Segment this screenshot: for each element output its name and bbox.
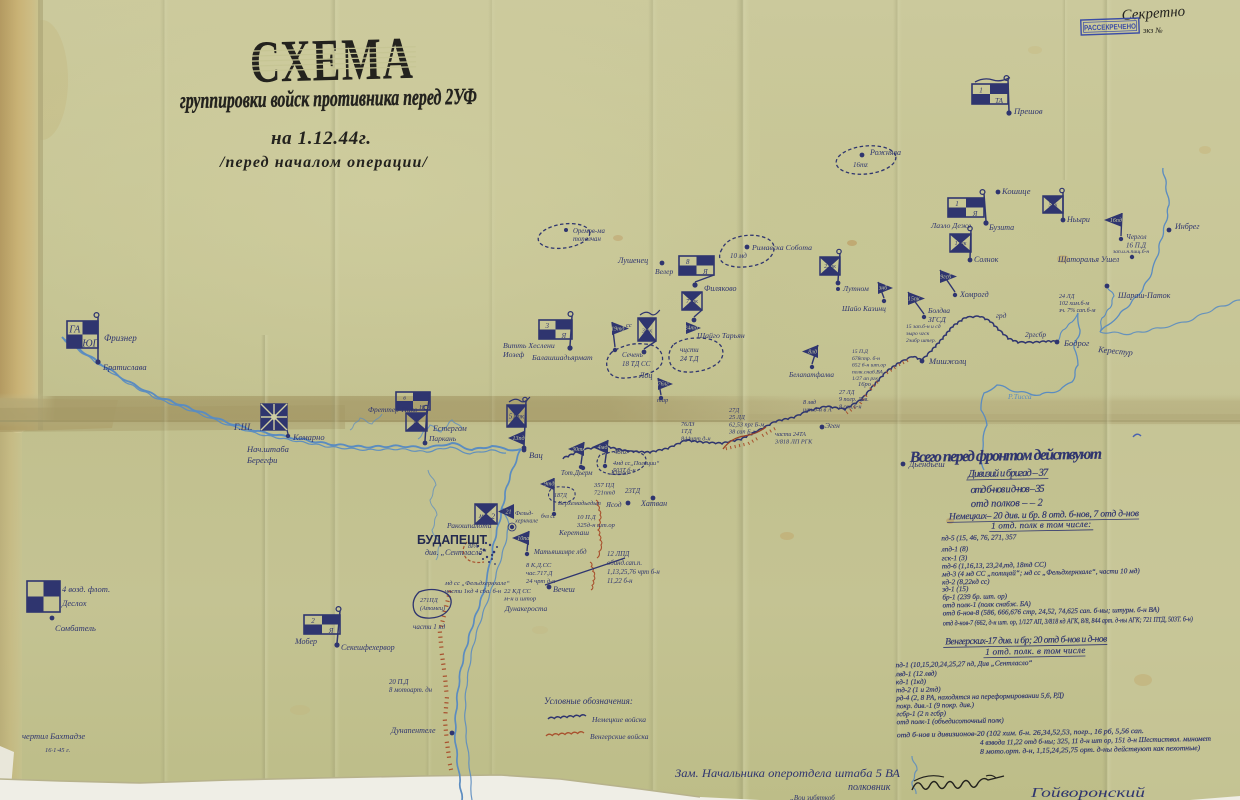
svg-text:Ракошпалота: Ракошпалота: [446, 521, 492, 530]
svg-text:ЗГСД: ЗГСД: [928, 315, 947, 324]
svg-text:30тк: 30тк: [571, 447, 585, 453]
svg-text:Лазло Деже: Лазло Деже: [930, 221, 972, 230]
svg-text:76лг: 76лг: [658, 382, 670, 388]
svg-text:Лушенец: Лушенец: [617, 256, 648, 265]
svg-text:678стр. б-н: 678стр. б-н: [852, 355, 880, 362]
svg-text:Белапатфалва: Белапатфалва: [788, 371, 834, 379]
svg-text:Вац: Вац: [529, 450, 543, 460]
svg-text:15 П.Д: 15 П.Д: [852, 349, 868, 355]
svg-text:Комарно: Комарно: [292, 432, 325, 442]
svg-text:Витть Хеслени: Витть Хеслени: [503, 341, 555, 350]
svg-text:16·1·45 г.: 16·1·45 г.: [45, 747, 71, 754]
svg-text:Лутном: Лутном: [842, 284, 869, 293]
svg-text:17ак: 17ак: [955, 241, 967, 247]
svg-text:12 ЛПД: 12 ЛПД: [607, 551, 630, 558]
svg-text:ТА: ТА: [995, 97, 1003, 105]
svg-text:2: 2: [491, 512, 495, 521]
svg-text:503Т б-н: 503Т б-н: [613, 467, 636, 474]
svg-text:Секешфехервор: Секешфехервор: [341, 643, 395, 652]
svg-text:ГА: ГА: [68, 324, 81, 335]
svg-text:Мобер: Мобер: [294, 637, 317, 646]
svg-text:Матьяшимре лбд: Матьяшимре лбд: [533, 548, 587, 556]
svg-text:Ньыри: Ньыри: [1066, 215, 1090, 224]
svg-text:Дивизий и бригад – 37: Дивизий и бригад – 37: [967, 468, 1049, 480]
svg-text:4мд: 4мд: [598, 444, 608, 451]
svg-text:Шайо Казинц: Шайо Казинц: [841, 304, 886, 313]
svg-text:сс: сс: [626, 322, 632, 329]
svg-text:1: 1: [979, 86, 983, 94]
svg-text:Я: Я: [702, 268, 708, 276]
svg-text:76ЛЗ: 76ЛЗ: [681, 421, 694, 428]
svg-text:Оремов-ма: Оремов-ма: [573, 228, 605, 235]
svg-text:лпд-1 (8): лпд-1 (8): [940, 545, 968, 553]
svg-text:4мд сс„Полиции“: 4мд сс„Полиции“: [613, 460, 660, 467]
svg-text:Я: Я: [328, 627, 334, 635]
svg-text:24 ЛД: 24 ЛД: [1059, 293, 1076, 300]
svg-text:на 1.12.44г.: на 1.12.44г.: [271, 128, 371, 149]
svg-text:Паркань: Паркань: [428, 434, 457, 443]
svg-text:18 ТД СС: 18 ТД СС: [622, 360, 651, 368]
svg-text:Мишжолц: Мишжолц: [928, 356, 966, 366]
svg-text:721птд: 721птд: [594, 490, 616, 497]
svg-text:„Вои зибяткоб: „Вои зибяткоб: [790, 794, 835, 800]
svg-text:Ясод: Ясод: [605, 500, 622, 509]
svg-text:части 1кд 4 сба. б-н: части 1кд 4 сба. б-н: [445, 588, 501, 595]
svg-text:группировки войск противника п: группировки войск противника перед 2УФ: [180, 84, 477, 113]
svg-text:м-н и штор: м-н и штор: [503, 596, 537, 603]
svg-text:23ак: 23ак: [824, 264, 836, 270]
svg-text:25 ЛД: 25 ЛД: [729, 414, 746, 421]
svg-text:Тот.Дьерм: Тот.Дьерм: [561, 470, 593, 477]
svg-text:Берегфи: Берегфи: [246, 455, 277, 465]
svg-text:зч. 7% сап.б-м: зч. 7% сап.б-м: [1058, 307, 1096, 314]
svg-text:Бузита: Бузита: [988, 223, 1014, 232]
svg-text:Фельд-: Фельд-: [515, 510, 533, 517]
svg-text:шт.б-н в А: шт.б-н в А: [803, 407, 832, 414]
svg-text:бчз сс: бчз сс: [541, 513, 556, 520]
svg-text:4 возд. флот.: 4 возд. флот.: [62, 584, 110, 594]
svg-text:8лд: 8лд: [808, 348, 817, 355]
svg-text:Рожнява: Рожнява: [869, 148, 901, 157]
svg-text:13пд: 13пд: [513, 435, 525, 442]
svg-text:Нач.штаба: Нач.штаба: [246, 444, 289, 454]
svg-text:Р.Тисса: Р.Тисса: [1007, 392, 1032, 401]
svg-text:знб: знб: [878, 285, 888, 292]
svg-text:Фризнер: Фризнер: [104, 333, 137, 343]
svg-text:187Д: 187Д: [554, 493, 568, 499]
svg-text:1,13,25,76 чрт б-н: 1,13,25,76 чрт б-н: [607, 569, 660, 576]
svg-text:(Атомец): (Атомец): [420, 605, 445, 612]
svg-text:Я: Я: [560, 332, 566, 340]
svg-text:8 мотоарт. дн: 8 мотоарт. дн: [389, 687, 433, 694]
svg-text:Вечеш: Вечеш: [553, 585, 575, 594]
svg-text:24тд: 24тд: [684, 325, 697, 332]
svg-text:Я: Я: [972, 210, 978, 218]
svg-text:48пz: 48пz: [614, 449, 627, 456]
svg-text:Г.Ш.: Г.Ш.: [233, 422, 252, 432]
svg-text:Естергом: Естергом: [432, 424, 467, 433]
svg-text:1ТД: 1ТД: [681, 428, 693, 435]
svg-text:27 ЛД: 27 ЛД: [839, 390, 856, 396]
svg-text:9гсб: 9гсб: [940, 273, 952, 280]
svg-text:Дунапентеле: Дунапентеле: [390, 726, 436, 735]
svg-text:отд полков – – 2: отд полков – – 2: [971, 498, 1044, 510]
svg-text:Хатван: Хатван: [640, 499, 667, 508]
svg-text:3: 3: [545, 322, 550, 330]
svg-text:8 сап.б-н: 8 сап.б-н: [839, 403, 862, 410]
svg-text:Всего перед фронтом действуют: Всего перед фронтом действуют: [909, 446, 1102, 466]
svg-text:ЮГ: ЮГ: [81, 339, 98, 350]
svg-text:72ак: 72ак: [686, 299, 698, 305]
svg-text:51тк: 51тк: [509, 413, 525, 421]
svg-text:Сечень: Сечень: [622, 351, 643, 359]
svg-text:Велер: Велер: [655, 267, 674, 276]
svg-text:24 Т.Д: 24 Т.Д: [680, 355, 699, 363]
svg-text:обинд.сап.п.: обинд.сап.п.: [607, 560, 642, 567]
svg-text:2: 2: [311, 617, 315, 625]
svg-text:Деслох: Деслох: [61, 598, 87, 608]
svg-text:полковник: полковник: [848, 782, 891, 793]
svg-text:хернхале: хернхале: [514, 518, 538, 525]
svg-text:РАССЕКРЕЧЕНО: РАССЕКРЕЧЕНО: [1084, 22, 1136, 33]
svg-text:3тк: 3тк: [641, 328, 652, 334]
svg-text:8 К.Д.СС: 8 К.Д.СС: [526, 562, 552, 569]
svg-text:15пк: 15пк: [908, 296, 920, 302]
svg-text:Хомрогд: Хомрогд: [959, 290, 989, 299]
svg-text:271ПД: 271ПД: [420, 597, 439, 604]
svg-text:чцсти: чцсти: [680, 346, 699, 354]
svg-text:Чергол: Чергол: [1126, 233, 1147, 241]
svg-text:2ргсбр: 2ргсбр: [1025, 330, 1046, 339]
svg-text:Балашшадьярмат: Балашшадьярмат: [531, 353, 593, 362]
svg-text:эыро чгск: эыро чгск: [906, 331, 930, 337]
svg-text:грд: грд: [996, 311, 1007, 320]
svg-text:Эген: Эген: [825, 421, 840, 430]
svg-text:Шараш-Паток: Шараш-Паток: [1117, 291, 1171, 300]
svg-text:тар: тар: [657, 397, 669, 404]
svg-text:Лоц: Лоц: [638, 371, 652, 380]
svg-text:1: 1: [955, 200, 959, 208]
svg-text:в: в: [403, 396, 406, 402]
svg-text:62,53 прг Б-м: 62,53 прг Б-м: [729, 421, 764, 428]
svg-text:3/818 ЛП РГК: 3/818 ЛП РГК: [774, 439, 813, 446]
svg-text:час.717.Д: час.717.Д: [526, 570, 553, 577]
svg-text:20 П.Д: 20 П.Д: [389, 679, 409, 686]
svg-text:м: м: [478, 512, 484, 520]
svg-text:9тд: 9тд: [544, 481, 554, 488]
svg-text:отд б-нов и д-нов – 35: отд б-нов и д-нов – 35: [970, 484, 1044, 496]
svg-text:чертил Бахтадзе: чертил Бахтадзе: [22, 731, 85, 741]
svg-text:Филяково: Филяково: [704, 284, 736, 293]
svg-text:экз №: экз №: [1143, 26, 1163, 35]
svg-text:16ро: 16ро: [858, 381, 872, 388]
svg-text:16пд: 16пд: [1110, 217, 1122, 224]
svg-text:357 ПД: 357 ПД: [593, 482, 615, 489]
svg-text:Сомбатель: Сомбатель: [55, 623, 96, 633]
svg-text:24 чрт д-н: 24 чрт д-н: [526, 578, 555, 585]
svg-text:8РА: 8РА: [468, 544, 478, 550]
svg-text:11,22 б-н: 11,22 б-н: [607, 578, 633, 585]
svg-text:652 б-н шт.ор: 652 б-н шт.ор: [852, 362, 886, 369]
svg-text:23ТД: 23ТД: [625, 488, 641, 495]
svg-text:8 лвд: 8 лвд: [803, 399, 816, 406]
svg-text:мд сс „Фельдхернхале“: мд сс „Фельдхернхале“: [444, 580, 510, 587]
svg-text:Кереташ: Кереташ: [558, 528, 589, 537]
svg-text:10 П.Д: 10 П.Д: [577, 514, 596, 521]
svg-text:Братислава: Братислава: [102, 362, 147, 372]
svg-text:22 КД СС: 22 КД СС: [504, 588, 532, 595]
svg-text:тополчан: тополчан: [573, 236, 601, 243]
svg-text:части 24ТА: части 24ТА: [775, 431, 806, 438]
svg-text:див. „Сентласло“: див. „Сентласло“: [425, 548, 487, 557]
svg-text:пд-5 (15, 46, 76, 271, 357: пд-5 (15, 46, 76, 271, 357: [941, 533, 1016, 542]
svg-text:844чрт д-н: 844чрт д-н: [681, 435, 711, 442]
svg-text:27Д: 27Д: [729, 407, 740, 414]
svg-text:Инбрег: Инбрег: [1174, 222, 1199, 231]
svg-text:Венгерские войска: Венгерские войска: [590, 732, 649, 741]
svg-text:Условные обозначения:: Условные обозначения:: [544, 696, 633, 706]
svg-text:16тz: 16тz: [853, 161, 868, 169]
svg-text:Верхемадьедьт: Верхемадьедьт: [558, 500, 601, 507]
svg-text:1 отд. полк в том числе:: 1 отд. полк в том числе:: [991, 519, 1091, 531]
svg-text:Иозеф: Иозеф: [502, 350, 525, 359]
svg-text:части 1 кд: части 1 кд: [413, 623, 446, 631]
svg-text:10 мд: 10 мд: [730, 252, 747, 260]
svg-text:Дунакероста: Дунакероста: [504, 604, 548, 613]
svg-text:1 отд. полк. в том числе: 1 отд. полк. в том числе: [985, 645, 1085, 657]
svg-text:21: 21: [506, 510, 512, 516]
svg-text:Щаторалья Ушел: Щаторалья Ушел: [1057, 255, 1120, 264]
svg-text:полк.снаб.ВА: полк.снаб.ВА: [852, 368, 883, 375]
svg-text:10па: 10па: [517, 536, 529, 542]
svg-text:Римавска Собота: Римавска Собота: [751, 243, 812, 252]
svg-text:/перед началом операции/: /перед началом операции/: [219, 154, 429, 171]
svg-text:Зам. Начальника оперотдела ш: Зам. Начальника оперотдела штаба 5 ВА: [675, 768, 901, 780]
svg-text:9 погр. Див.: 9 погр. Див.: [839, 397, 869, 403]
svg-text:102 хим.б-м: 102 хим.б-м: [1059, 300, 1090, 307]
svg-text:8: 8: [686, 258, 690, 266]
svg-text:2эибр штер.: 2эибр штер.: [906, 337, 936, 344]
svg-text:ак: ак: [414, 420, 420, 426]
svg-text:зап.и.н.пищ.б-н: зап.и.н.пищ.б-н: [1112, 248, 1149, 255]
svg-text:Бодрог: Бодрог: [1063, 338, 1090, 348]
svg-text:5ак: 5ак: [1049, 203, 1058, 209]
svg-text:Болдва: Болдва: [927, 306, 950, 315]
svg-text:19тд: 19тд: [611, 325, 624, 332]
svg-text:Прешов: Прешов: [1013, 106, 1043, 116]
svg-text:15 зап.б-н и сд: 15 зап.б-н и сд: [906, 323, 941, 330]
svg-text:Шайго Тарьян: Шайго Тарьян: [696, 331, 745, 340]
svg-text:Солнок: Солнок: [974, 255, 999, 264]
svg-text:Гойворонский: Гойворонский: [1030, 786, 1145, 800]
svg-text:Кошице: Кошице: [1001, 186, 1031, 196]
svg-text:38 сап Б-м: 38 сап Б-м: [728, 429, 757, 436]
svg-text:Немецкие войска: Немецкие войска: [591, 715, 646, 724]
